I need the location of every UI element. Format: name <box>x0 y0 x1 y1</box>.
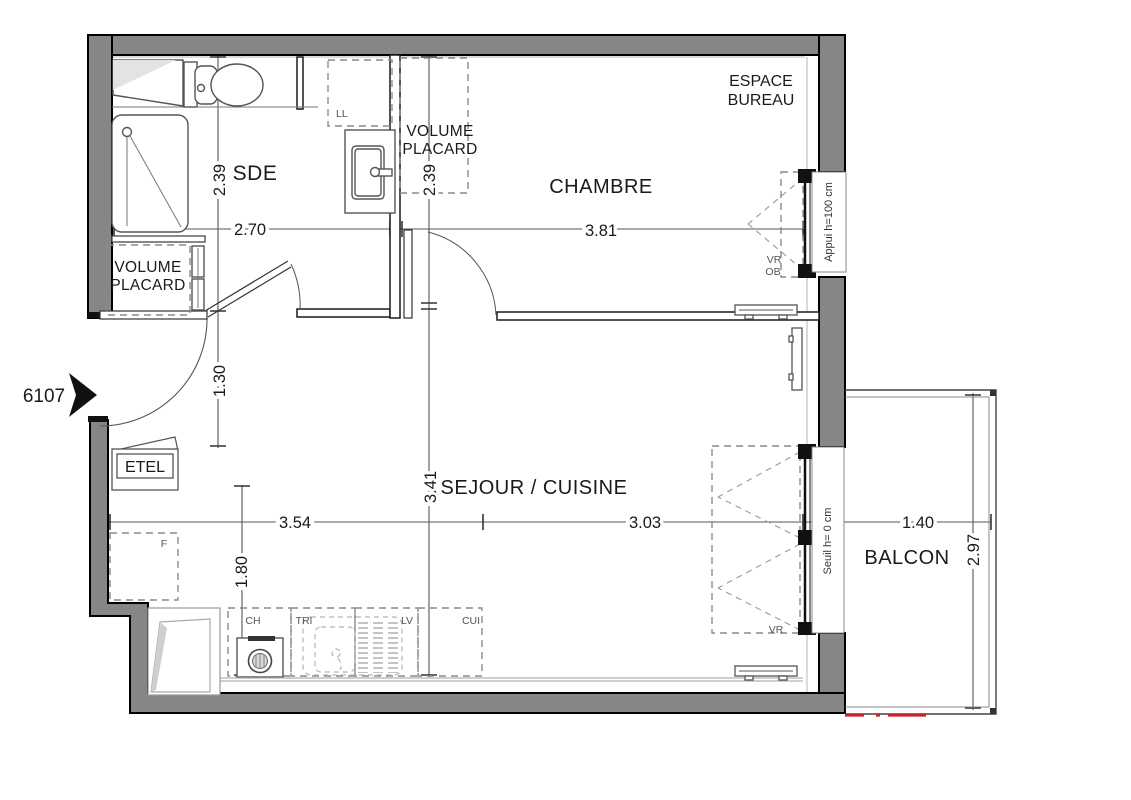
wall-right-middle <box>819 277 845 447</box>
basin-tap <box>371 168 380 177</box>
balcony-door-sill-label: Seuil h= 0 cm <box>822 508 834 575</box>
entry-door <box>100 311 207 426</box>
room-label-sejour-cuisine: SEJOUR / CUISINE <box>441 477 628 499</box>
dim-chambre-width: 3.81 <box>585 222 617 240</box>
sde-door <box>205 261 300 317</box>
fridge-zone <box>110 533 178 600</box>
entry-marker: 6107 <box>23 373 97 417</box>
closet-left-label-2: PLACARD <box>110 277 185 294</box>
wall-right-upper <box>819 35 845 172</box>
label-vr-balcony: VR <box>769 624 784 636</box>
shower-drain <box>123 128 132 137</box>
toilet-bowl <box>211 64 263 106</box>
floor-plan-svg: ETEL Appui h=100 cm Seuil <box>0 0 1131 800</box>
dim-kitchen-depth: 1.80 <box>233 556 251 588</box>
label-lv: LV <box>401 615 413 627</box>
dim-balcony-depth: 2.97 <box>965 534 983 566</box>
balcony-door-zone <box>712 446 800 633</box>
etel-panel: ETEL <box>112 437 178 490</box>
label-tri: TRI <box>296 615 313 627</box>
chambre-window-sill-label: Appui h=100 cm <box>823 182 835 262</box>
closet-chambre-label-1: VOLUME <box>406 123 473 140</box>
dim-sejour-width-right: 3.03 <box>629 514 661 532</box>
label-cui: CUI <box>462 615 480 627</box>
window-swing-dashes <box>718 178 803 630</box>
room-label-espace-bureau-1: ESPACE <box>729 73 793 90</box>
dim-hall-width: 1.30 <box>211 365 229 397</box>
dim-placard-depth: 2.39 <box>421 164 439 196</box>
entry-door-leaf <box>100 311 207 319</box>
wall-left-upper <box>88 35 112 318</box>
label-ch: CH <box>245 615 260 627</box>
room-label-balcon: BALCON <box>864 547 949 569</box>
label-ll: LL <box>336 108 348 120</box>
closet-left-label-1: VOLUME <box>114 259 181 276</box>
chambre-window: Appui h=100 cm <box>798 169 846 278</box>
equipment-labels: LL F CH TRI LV CUI VR OB VR <box>161 108 784 636</box>
kitchen-counter-line <box>220 678 803 681</box>
wall-top <box>88 35 845 55</box>
unit-number: 6107 <box>23 386 65 407</box>
etel-label: ETEL <box>125 459 165 476</box>
room-label-chambre: CHAMBRE <box>549 176 653 198</box>
chambre-door <box>404 230 496 318</box>
balcony-door: Seuil h= 0 cm <box>798 444 844 635</box>
partition-sde-south <box>297 309 390 317</box>
dim-sde-depth: 2.39 <box>211 164 229 196</box>
radiator-sejour-wall <box>789 328 802 390</box>
placard-top-edge <box>112 236 205 242</box>
dimension-lines <box>108 55 991 710</box>
dim-sejour-width-left: 3.54 <box>279 514 311 532</box>
chambre-door-leaf <box>404 230 412 318</box>
technical-shaft <box>148 608 220 695</box>
floor-plan-canvas: ETEL Appui h=100 cm Seuil <box>0 0 1131 800</box>
label-vr-chambre: VR <box>767 254 782 266</box>
dishwasher-hatch <box>363 622 393 673</box>
dimension-labels: 2.39 2.39 2.70 3.81 1.30 3.41 3.54 3.03 … <box>211 164 983 588</box>
label-f: F <box>161 538 167 550</box>
dim-sde-width: 2.70 <box>234 221 266 239</box>
room-label-sde: SDE <box>233 162 278 185</box>
dim-balcony-width: 1.40 <box>902 514 934 532</box>
entry-arrow-icon <box>69 373 97 417</box>
label-ob-chambre: OB <box>765 266 780 278</box>
closet-chambre-label-2: PLACARD <box>402 141 477 158</box>
dim-sejour-depth: 3.41 <box>422 471 440 503</box>
water-heater-top <box>248 636 275 641</box>
partition-wc-side <box>297 57 303 109</box>
sink-dashed <box>303 617 402 675</box>
toilet-button <box>198 85 205 92</box>
room-label-espace-bureau-2: BUREAU <box>728 92 795 109</box>
wall-end-caps <box>88 312 112 422</box>
